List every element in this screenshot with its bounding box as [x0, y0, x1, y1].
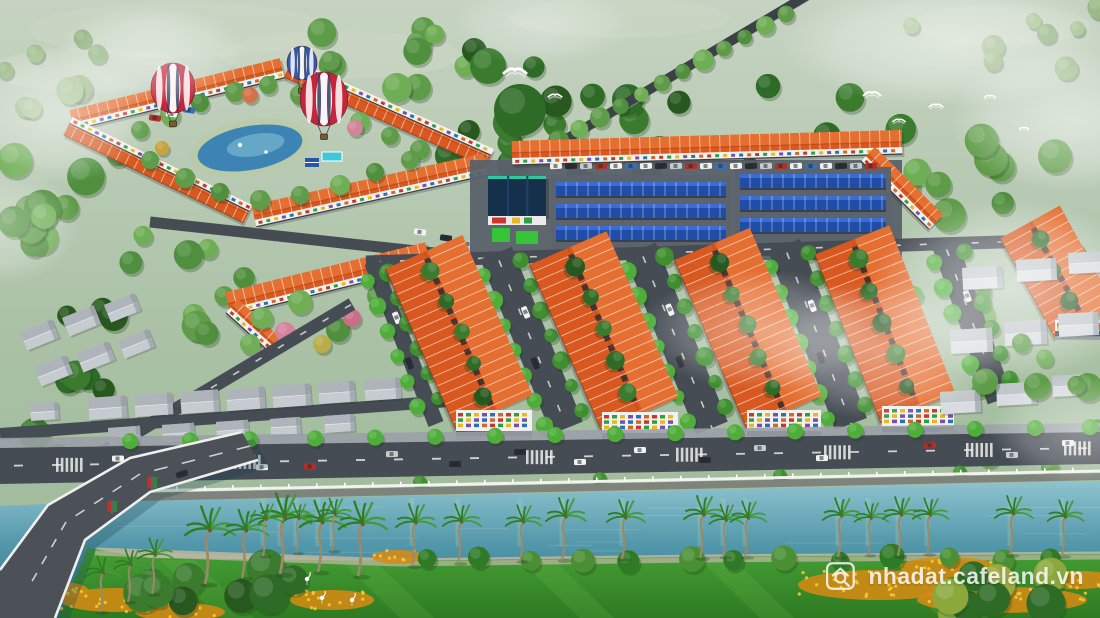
market-building — [488, 176, 549, 225]
house — [30, 402, 61, 423]
house — [134, 392, 175, 419]
car — [112, 455, 124, 461]
car — [580, 163, 592, 170]
car — [386, 451, 398, 457]
house — [324, 414, 357, 435]
market-stalls — [735, 167, 891, 241]
car — [924, 442, 936, 448]
car — [685, 163, 697, 170]
car — [700, 163, 712, 170]
car — [699, 457, 711, 463]
scene-svg — [0, 0, 1100, 618]
house — [226, 386, 267, 413]
hedge — [492, 228, 510, 242]
house — [364, 377, 403, 403]
aerial-rendering: nhadat.cafeland.vn — [0, 0, 1100, 618]
car — [754, 445, 766, 451]
car — [715, 163, 727, 170]
car — [760, 163, 772, 170]
car — [775, 163, 787, 170]
car — [565, 163, 577, 170]
car — [835, 163, 847, 170]
banner-pole — [147, 476, 157, 490]
swimming-pool — [322, 152, 342, 161]
car — [865, 163, 877, 170]
house — [272, 383, 313, 410]
car — [550, 163, 562, 170]
house — [88, 395, 129, 422]
house — [180, 389, 221, 416]
car — [805, 163, 817, 170]
hedge — [516, 231, 538, 244]
car — [514, 449, 526, 455]
car — [730, 163, 742, 170]
banner-pole — [107, 500, 117, 514]
car — [304, 463, 316, 469]
car — [816, 455, 828, 461]
car — [820, 163, 832, 170]
car — [850, 163, 862, 170]
car — [634, 447, 646, 453]
car — [745, 163, 757, 170]
car — [610, 163, 622, 170]
house — [318, 380, 357, 406]
car — [655, 163, 667, 170]
pavilion — [305, 158, 319, 167]
car — [449, 461, 461, 467]
car — [574, 459, 586, 465]
car — [595, 163, 607, 170]
car — [790, 163, 802, 170]
car — [670, 163, 682, 170]
car — [625, 163, 637, 170]
car — [640, 163, 652, 170]
market-stalls — [551, 175, 731, 249]
